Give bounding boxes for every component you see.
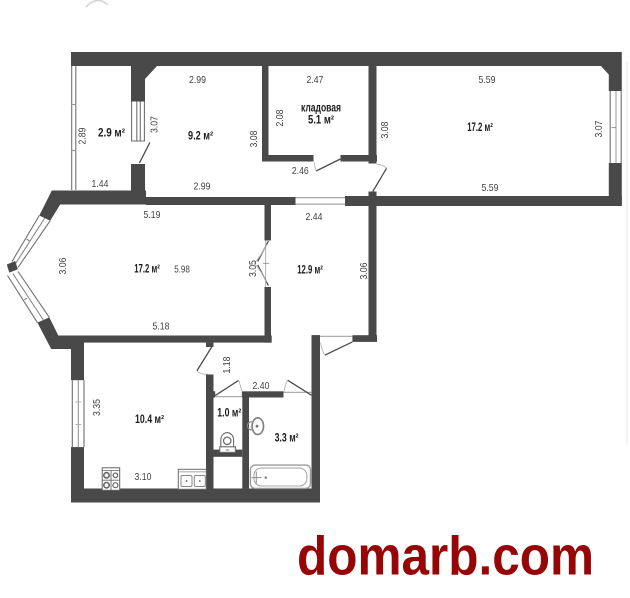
svg-text:3.07: 3.07 xyxy=(594,120,605,137)
svg-text:5.98: 5.98 xyxy=(174,265,190,276)
svg-text:1.44: 1.44 xyxy=(92,179,109,190)
svg-text:3.08: 3.08 xyxy=(249,130,260,147)
svg-text:2.9 м²: 2.9 м² xyxy=(98,127,125,140)
svg-text:3.06: 3.06 xyxy=(58,257,69,274)
svg-text:17.2 м²: 17.2 м² xyxy=(134,263,160,276)
svg-text:5.18: 5.18 xyxy=(153,322,170,333)
svg-text:10.4 м²: 10.4 м² xyxy=(135,413,164,426)
svg-text:2.40: 2.40 xyxy=(253,381,270,392)
svg-text:3.35: 3.35 xyxy=(92,399,103,416)
svg-text:1.18: 1.18 xyxy=(222,356,233,373)
svg-text:2.44: 2.44 xyxy=(306,212,323,223)
svg-text:domarb.com: domarb.com xyxy=(297,525,594,587)
svg-text:3.06: 3.06 xyxy=(359,262,370,279)
svg-text:3.05: 3.05 xyxy=(248,260,259,277)
svg-text:5.19: 5.19 xyxy=(144,210,161,221)
svg-text:17.2 м²: 17.2 м² xyxy=(467,121,493,134)
svg-text:9.2 м²: 9.2 м² xyxy=(188,130,213,143)
svg-text:3.10: 3.10 xyxy=(135,472,152,483)
svg-text:2.47: 2.47 xyxy=(307,75,324,86)
svg-text:2.46: 2.46 xyxy=(292,166,309,177)
svg-text:2.89: 2.89 xyxy=(78,127,89,144)
svg-text:1.0 м²: 1.0 м² xyxy=(217,406,241,419)
svg-text:3.3 м²: 3.3 м² xyxy=(275,432,299,445)
svg-text:5.59: 5.59 xyxy=(479,75,496,86)
svg-text:3.07: 3.07 xyxy=(150,116,161,133)
svg-text:12.9 м²: 12.9 м² xyxy=(297,264,323,277)
svg-text:2.99: 2.99 xyxy=(194,182,211,193)
svg-text:2.08: 2.08 xyxy=(275,109,286,126)
svg-text:2.99: 2.99 xyxy=(189,75,206,86)
svg-text:5.1 м²: 5.1 м² xyxy=(308,114,334,127)
svg-text:5.59: 5.59 xyxy=(482,183,499,194)
svg-text:3.08: 3.08 xyxy=(380,121,391,138)
